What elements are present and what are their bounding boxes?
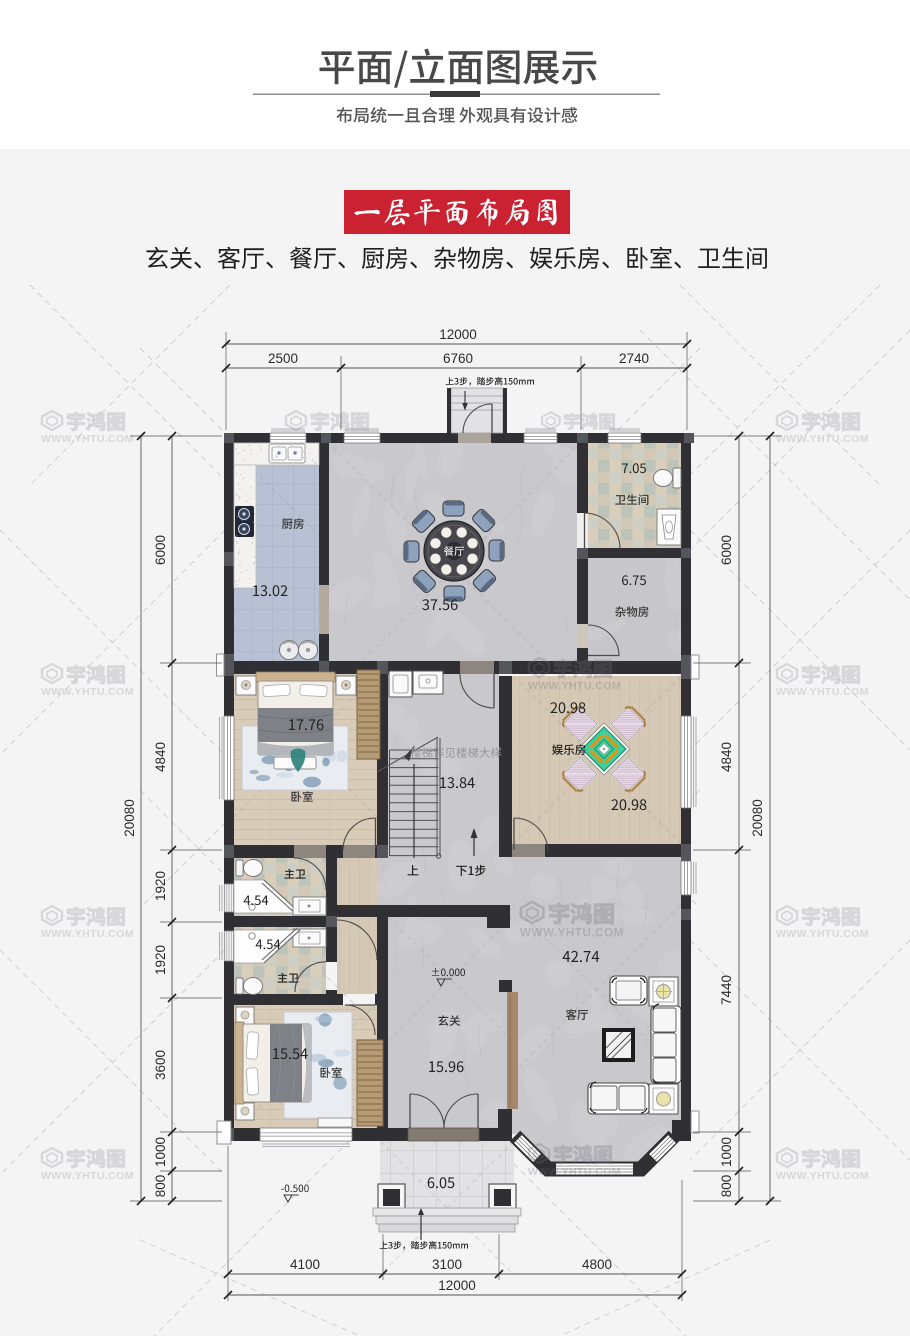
svg-text:1000: 1000 [719, 1137, 734, 1167]
svg-text:4100: 4100 [290, 1257, 320, 1272]
svg-text:3600: 3600 [153, 1050, 168, 1080]
svg-text:20080: 20080 [750, 799, 765, 837]
svg-text:3100: 3100 [432, 1257, 462, 1272]
svg-text:2500: 2500 [268, 351, 298, 366]
svg-text:6000: 6000 [719, 535, 734, 565]
svg-text:1920: 1920 [153, 871, 168, 901]
svg-text:6000: 6000 [153, 535, 168, 565]
svg-text:4840: 4840 [719, 742, 734, 772]
svg-text:1000: 1000 [153, 1137, 168, 1167]
svg-text:12000: 12000 [439, 327, 477, 342]
svg-text:4800: 4800 [582, 1257, 612, 1272]
svg-text:800: 800 [719, 1175, 734, 1198]
svg-text:4840: 4840 [153, 742, 168, 772]
svg-text:6760: 6760 [443, 351, 473, 366]
svg-text:20080: 20080 [122, 799, 137, 837]
svg-text:800: 800 [153, 1175, 168, 1198]
svg-text:12000: 12000 [438, 1278, 476, 1293]
svg-text:2740: 2740 [619, 351, 649, 366]
svg-text:1920: 1920 [153, 945, 168, 975]
svg-text:7440: 7440 [719, 975, 734, 1005]
